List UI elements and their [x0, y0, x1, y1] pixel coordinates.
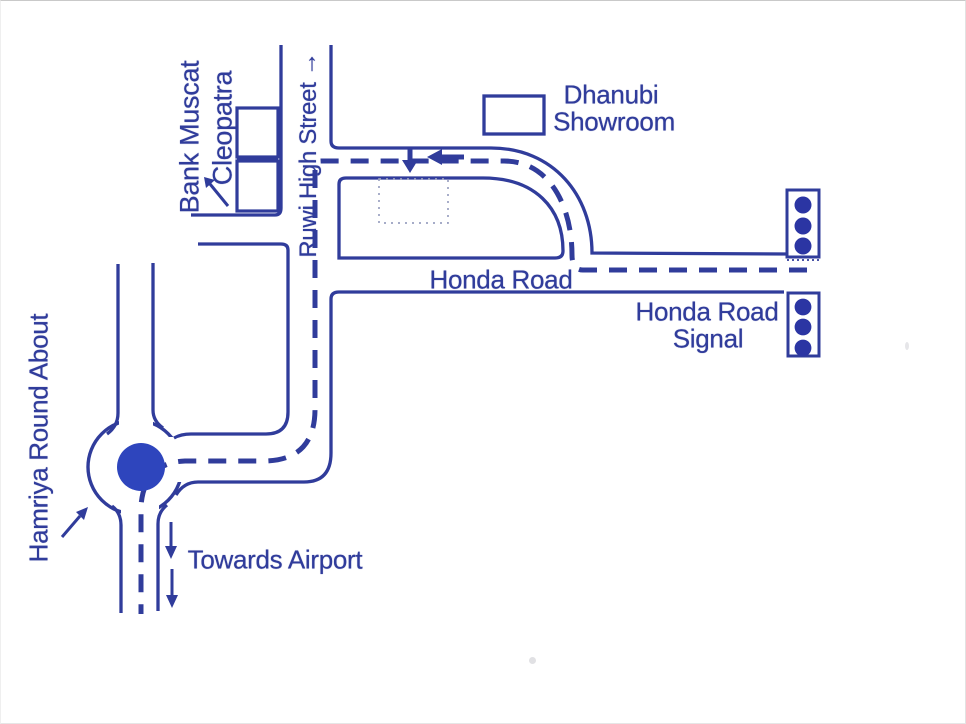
label-honda-road: Honda Road: [430, 265, 573, 296]
label-cleopatra: Cleopatra: [208, 71, 239, 185]
label-towards-airport: Towards Airport: [188, 545, 363, 576]
bank-muscat-buildings: [237, 108, 278, 211]
airport-arrow-2-head: [166, 595, 178, 608]
label-honda-road-signal-line2: Signal: [673, 324, 743, 355]
arrow-left-head: [427, 149, 442, 165]
label-bank-muscat: Bank Muscat: [175, 61, 206, 214]
destination-dotted-plot: [379, 179, 448, 223]
building-block-upper: [237, 108, 278, 157]
arrow-down-head: [402, 160, 418, 173]
scan-speck: [905, 342, 909, 350]
building-block-lower: [237, 161, 278, 211]
dhanubi-showroom-building: [484, 96, 544, 134]
label-showroom: Showroom: [553, 107, 675, 138]
label-ruwi-high-street: Ruwi High Street →: [295, 52, 323, 257]
map-drawing: [1, 1, 966, 724]
cleopatra-pointer-shaft: [210, 184, 228, 206]
city-block-outline: [339, 178, 563, 258]
roundabout-center-dot-icon: [117, 443, 165, 491]
road-airport-left-edge: [112, 506, 121, 613]
traffic-light-icon-lower: [788, 293, 819, 356]
road-east-top-edge: [174, 244, 288, 438]
scan-speck: [529, 657, 536, 664]
label-hamriya-round-about: Hamriya Round About: [24, 314, 55, 563]
traffic-light-icon-upper: [787, 190, 820, 260]
road-north-left-edge: [107, 264, 118, 434]
road-airport-right-edge: [158, 505, 167, 611]
road-north-right-edge: [153, 263, 163, 428]
hamriya-pointer-shaft: [62, 516, 80, 537]
scanned-map: Bank Muscat Cleopatra Ruwi High Street →…: [0, 0, 966, 724]
airport-arrow-1-head: [165, 546, 177, 559]
